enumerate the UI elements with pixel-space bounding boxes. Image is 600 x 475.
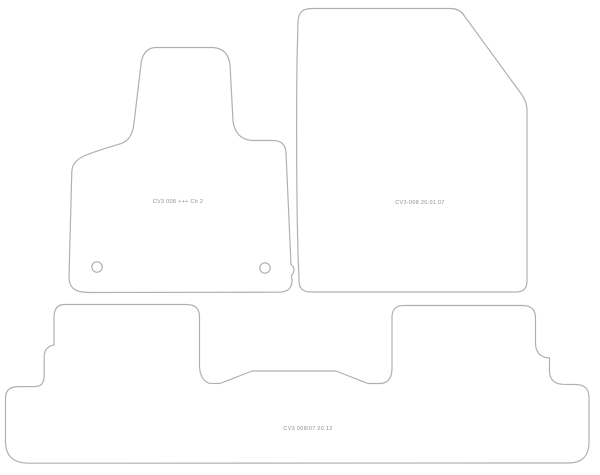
svg-text:CV3 008/07 20.12: CV3 008/07 20.12 (283, 426, 332, 432)
svg-text:CV3-008 20.01.07: CV3-008 20.01.07 (395, 200, 444, 206)
svg-text:CV3 008 +++ Ch 2: CV3 008 +++ Ch 2 (153, 199, 204, 205)
